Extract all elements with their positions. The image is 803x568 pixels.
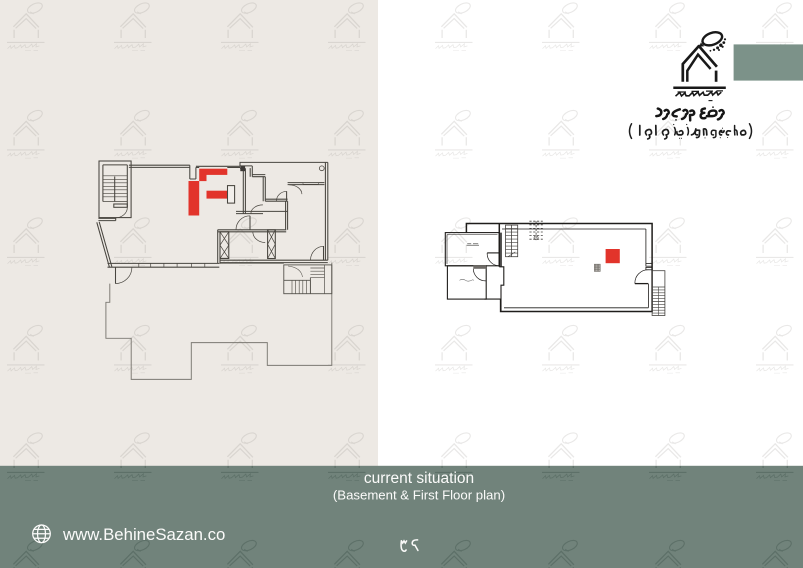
svg-text:www.BehineSazan.co: www.BehineSazan.co (62, 525, 225, 544)
svg-text:current situation: current situation (364, 470, 474, 487)
svg-text:(Basement & First Floor plan): (Basement & First Floor plan) (333, 488, 505, 503)
